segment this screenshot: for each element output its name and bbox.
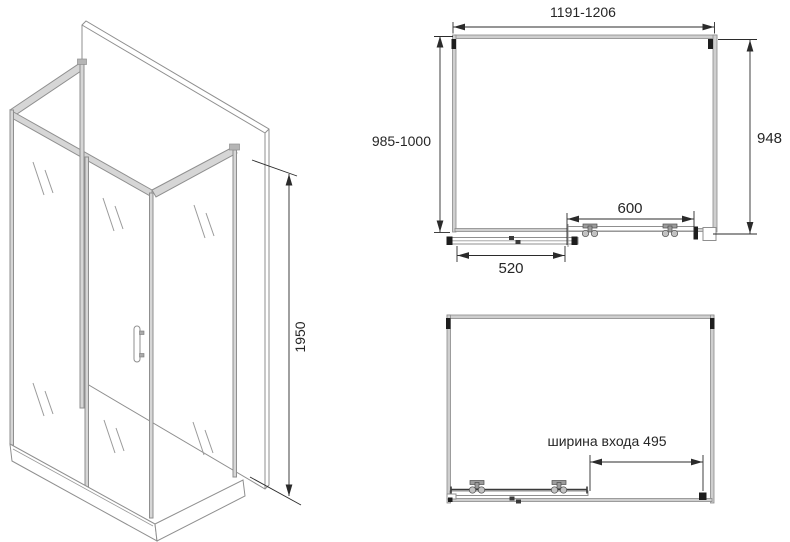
dim-depth: 985-1000 (372, 36, 453, 233)
plan-view-open: ширина входа 495 (446, 315, 715, 504)
plan-view-closed: 1191-1206 985-1000 948 600 520 (372, 4, 782, 277)
dim-overall-width: 1191-1206 (453, 4, 715, 34)
technical-drawing-canvas: 1950 (0, 0, 790, 542)
dim-height-label: 1950 (292, 321, 308, 352)
dim-fixed-section-label: 600 (617, 200, 642, 217)
shower-enclosure-drawing: 1950 (0, 0, 790, 542)
dim-glass-width-label: 948 (757, 130, 782, 147)
dim-depth-label: 985-1000 (372, 133, 431, 149)
dim-entrance-width-label: ширина входа 495 (547, 433, 666, 449)
walls-closed (452, 35, 718, 232)
dim-fixed-section: 600 (567, 200, 694, 245)
dim-door-section: 520 (457, 246, 565, 277)
dim-door-section-label: 520 (498, 260, 523, 277)
dim-entrance-width: ширина входа 495 (547, 433, 703, 491)
walls-open (446, 315, 715, 503)
dim-overall-width-label: 1191-1206 (550, 4, 616, 20)
sliding-door-closed (447, 224, 717, 247)
dim-glass-width: 948 (713, 40, 782, 235)
back-panel (82, 21, 269, 489)
shower-tray (10, 444, 245, 541)
iso-view-3d: 1950 (10, 21, 308, 541)
